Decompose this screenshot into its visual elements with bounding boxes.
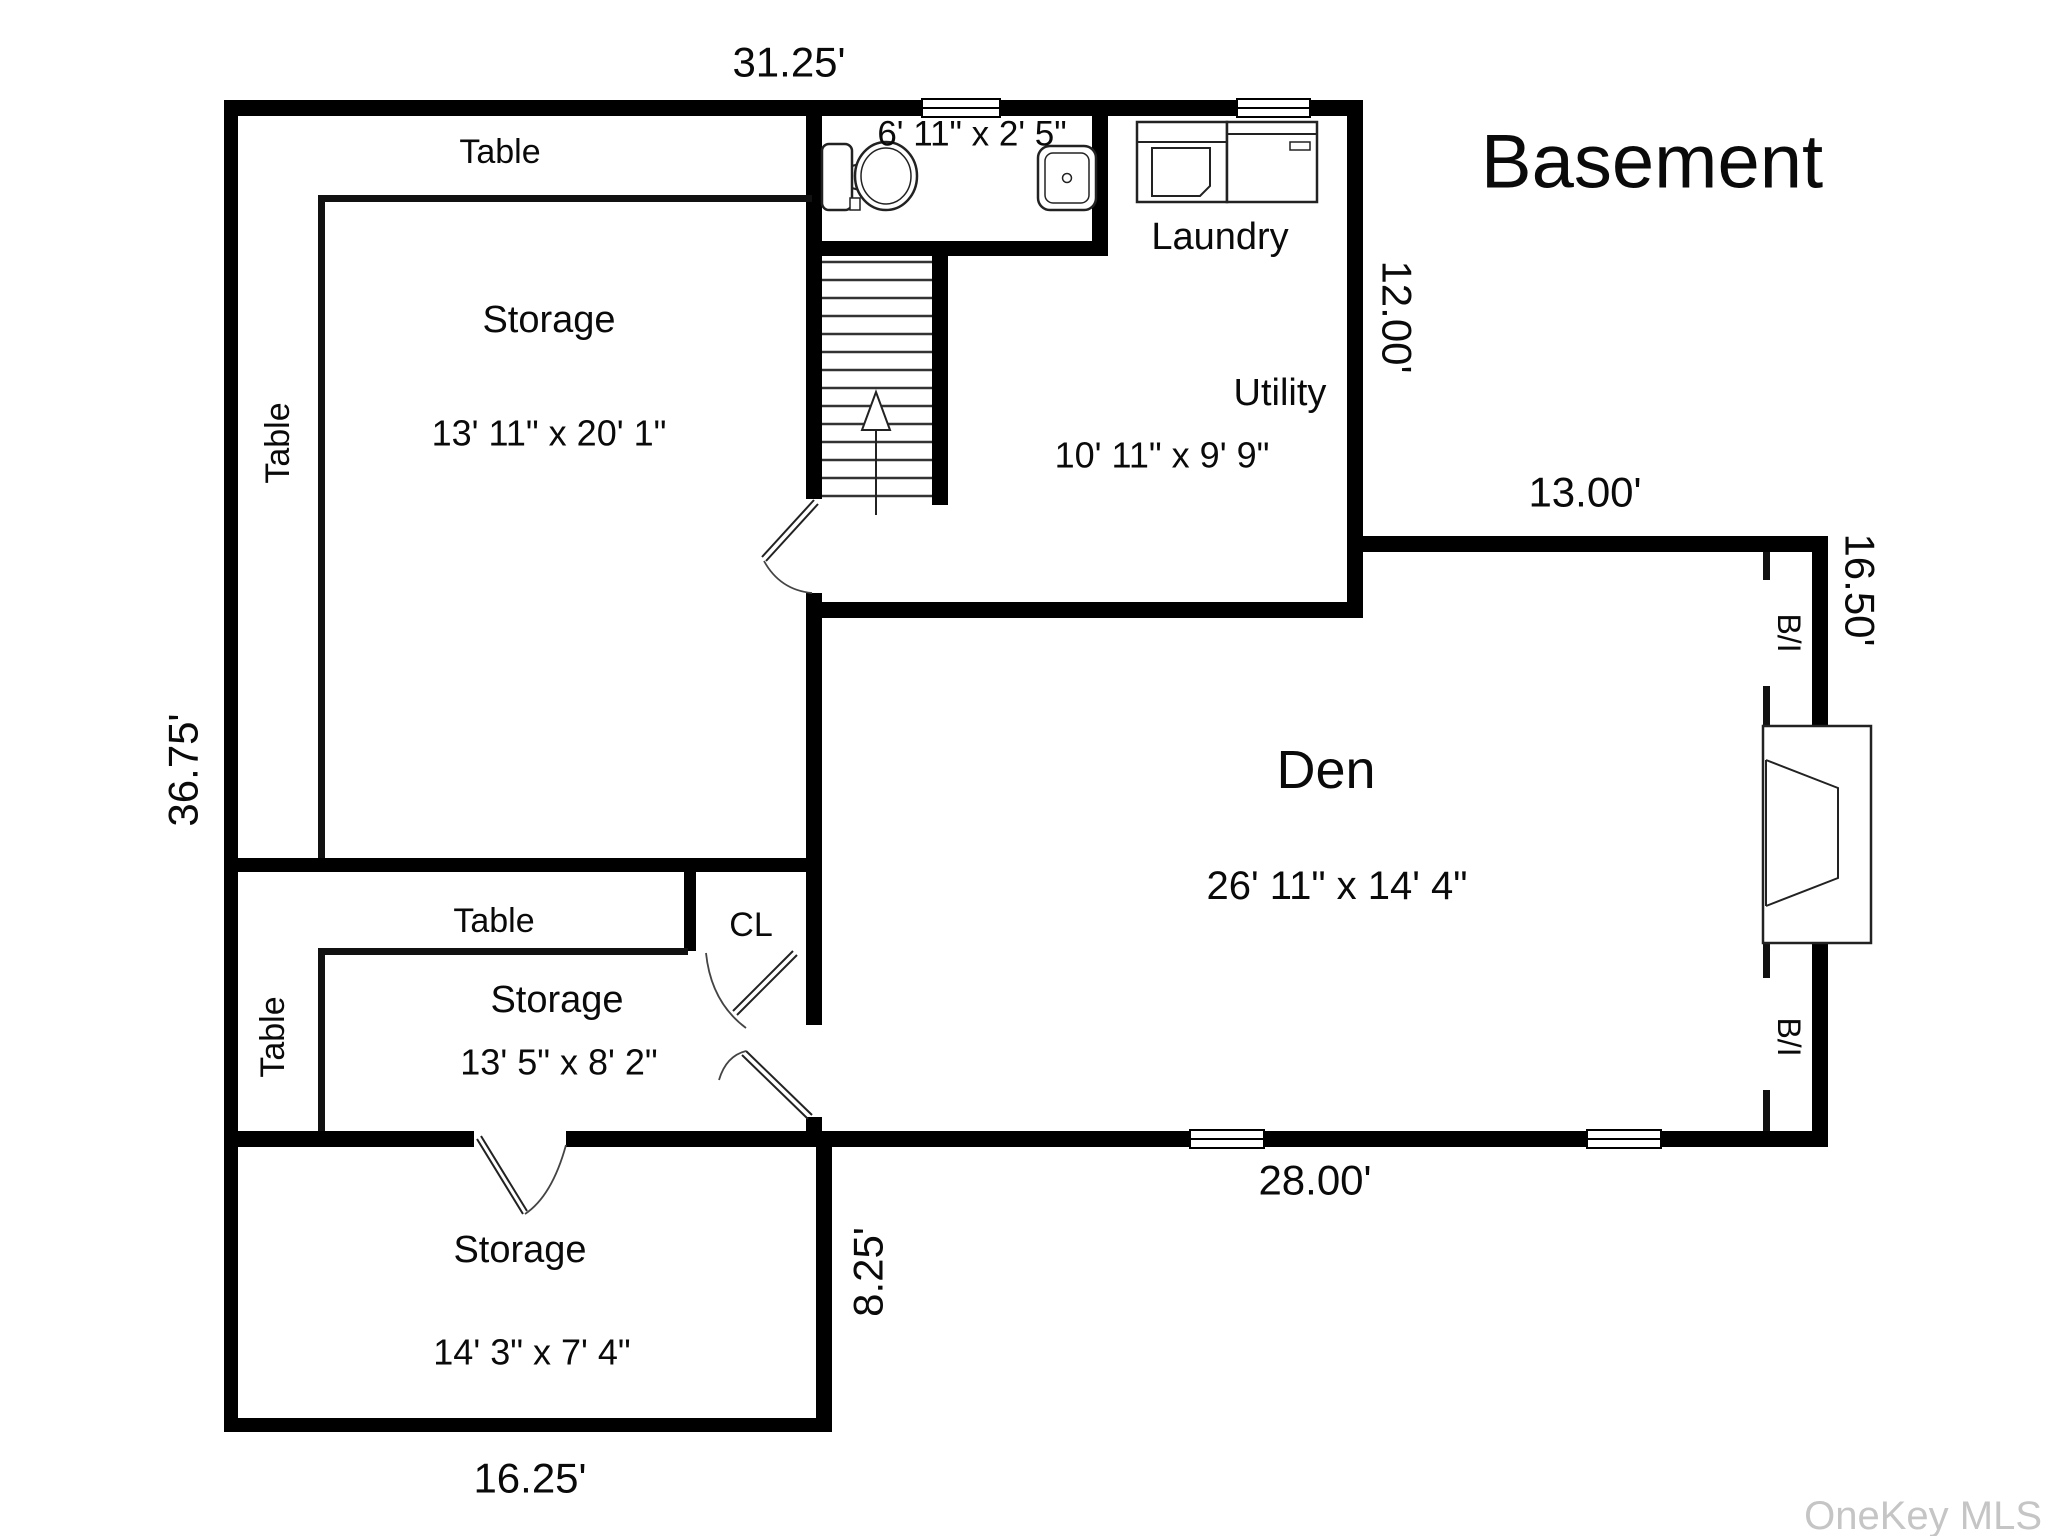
dryer-icon bbox=[1227, 122, 1317, 202]
page-title: Basement bbox=[1481, 120, 1823, 205]
sink-icon bbox=[1038, 146, 1096, 210]
wall-west-spine-upper bbox=[806, 100, 822, 499]
table-left-edge bbox=[318, 195, 325, 858]
room-dims-den: 26' 11" x 14' 4" bbox=[1207, 864, 1468, 908]
wall-closet-divider bbox=[684, 872, 696, 951]
dim-den-right-height: 16.50' bbox=[1837, 533, 1884, 646]
door-den-to-storage bbox=[719, 1051, 812, 1119]
wall-outer-bottom-left bbox=[224, 1418, 832, 1432]
window bbox=[1587, 1130, 1661, 1148]
dim-storage-bottom-right-height: 8.25' bbox=[845, 1227, 892, 1317]
room-dims-storage-bottom: 14' 3" x 7' 4" bbox=[433, 1332, 630, 1373]
wall-outer-top bbox=[224, 100, 1363, 116]
furniture-label-built-in-bottom: B/I bbox=[1771, 1017, 1807, 1056]
wall-outer-left bbox=[224, 100, 238, 1432]
wall-den-top-east bbox=[1355, 536, 1828, 552]
windows bbox=[922, 99, 1661, 1148]
furniture-label-table-left: Table bbox=[259, 402, 297, 483]
furniture-label-built-in-top: B/I bbox=[1771, 613, 1807, 652]
wall-middle-divider bbox=[224, 858, 822, 872]
table-middle-edge bbox=[322, 948, 688, 955]
room-label-storage-middle: Storage bbox=[490, 979, 623, 1021]
room-label-utility: Utility bbox=[1234, 372, 1327, 414]
room-label-storage-bottom: Storage bbox=[453, 1229, 586, 1271]
room-label-storage-top: Storage bbox=[482, 299, 615, 341]
wall-bathroom-bottom bbox=[806, 241, 1108, 256]
wall-stairs-right bbox=[932, 241, 948, 505]
wall-bottom-horizontal-west bbox=[224, 1131, 474, 1147]
room-dims-bathroom: 6' 11" x 2' 5" bbox=[877, 115, 1066, 154]
doors bbox=[477, 500, 818, 1214]
dim-bottom-width: 16.25' bbox=[473, 1455, 586, 1502]
door-stairs-landing bbox=[762, 500, 818, 593]
wall-storage-bottom-right bbox=[816, 1131, 832, 1432]
window bbox=[1237, 99, 1310, 117]
washer-icon bbox=[1137, 122, 1227, 202]
floor-plan-page: 31.25' 36.75' 12.00' 13.00' 16.50' 28.00… bbox=[0, 0, 2048, 1536]
built-in-stub bbox=[1763, 943, 1770, 978]
floor-plan-canvas: 31.25' 36.75' 12.00' 13.00' 16.50' 28.00… bbox=[0, 0, 2048, 1536]
dim-utility-right-height: 12.00' bbox=[1374, 260, 1421, 373]
furniture-label-table-top: Table bbox=[459, 133, 540, 171]
watermark: OneKey MLS bbox=[1804, 1494, 2042, 1536]
wall-utility-bottom bbox=[806, 602, 1355, 618]
door-closet bbox=[706, 951, 797, 1028]
built-in-stub bbox=[1763, 552, 1770, 580]
wall-west-spine-stub bbox=[806, 1117, 822, 1131]
dim-top-width: 31.25' bbox=[732, 39, 845, 86]
room-dims-utility: 10' 11" x 9' 9" bbox=[1055, 435, 1270, 476]
wall-den-right-lower bbox=[1812, 940, 1828, 1147]
table-top-edge bbox=[322, 195, 812, 202]
dim-left-height: 36.75' bbox=[160, 713, 207, 826]
built-in-stub bbox=[1763, 686, 1770, 726]
fireplace-icon bbox=[1763, 726, 1871, 943]
table-bottom-left-edge bbox=[318, 948, 325, 1131]
room-label-laundry: Laundry bbox=[1151, 216, 1288, 258]
window bbox=[1190, 1130, 1264, 1148]
door-bottom-storage bbox=[477, 1136, 566, 1214]
wall-utility-right bbox=[1347, 100, 1363, 618]
built-in-stub bbox=[1763, 1090, 1770, 1131]
wall-west-spine-middle bbox=[806, 593, 822, 1025]
wall-den-right-upper bbox=[1812, 536, 1828, 731]
room-dims-storage-middle: 13' 5" x 8' 2" bbox=[460, 1042, 657, 1083]
room-dims-storage-top: 13' 11" x 20' 1" bbox=[432, 413, 667, 454]
furniture-label-table-middle: Table bbox=[453, 902, 534, 940]
dim-den-bottom-width: 28.00' bbox=[1258, 1157, 1371, 1204]
furniture-label-table-bottom-left: Table bbox=[254, 996, 292, 1077]
dim-den-top-width: 13.00' bbox=[1528, 469, 1641, 516]
room-label-closet: CL bbox=[729, 906, 772, 944]
room-label-den: Den bbox=[1276, 740, 1375, 800]
